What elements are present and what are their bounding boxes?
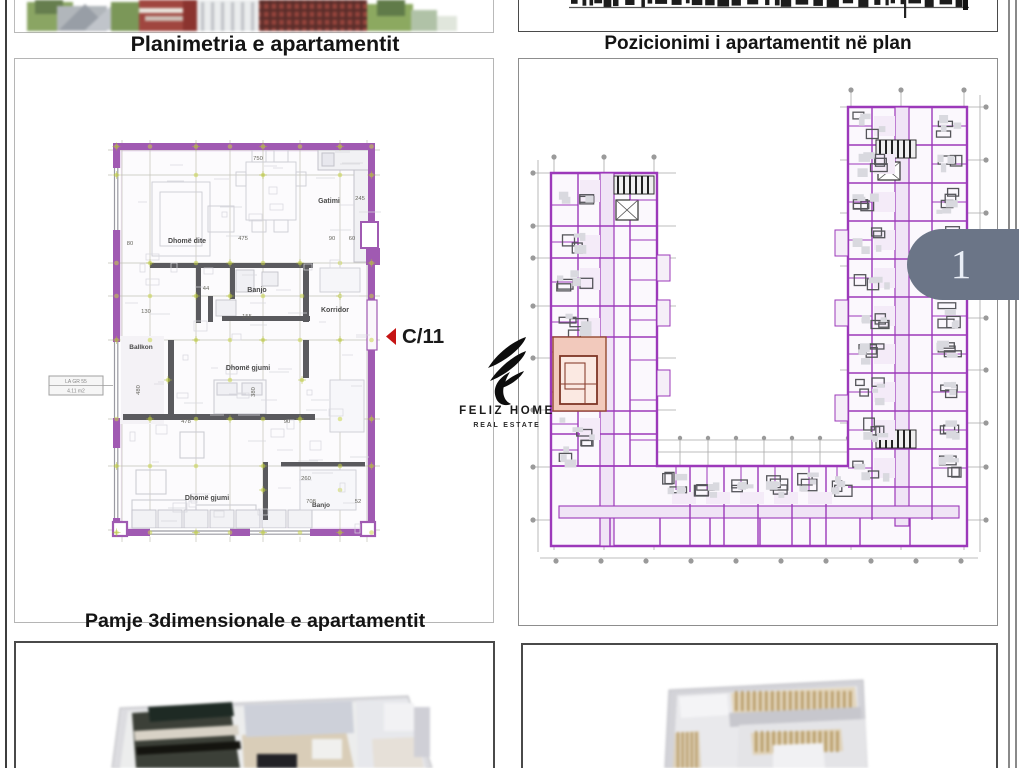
svg-text:478: 478 <box>181 419 191 425</box>
svg-text:245: 245 <box>355 196 365 202</box>
svg-text:90: 90 <box>329 236 335 242</box>
svg-text:LA GR 55: LA GR 55 <box>65 379 87 385</box>
svg-text:60: 60 <box>349 236 355 242</box>
svg-text:380: 380 <box>251 387 257 397</box>
svg-text:475: 475 <box>238 236 248 242</box>
svg-text:Dhomë gjumi: Dhomë gjumi <box>185 495 229 502</box>
svg-text:52: 52 <box>355 499 361 505</box>
svg-text:REAL ESTATE: REAL ESTATE <box>473 422 540 429</box>
svg-text:708: 708 <box>306 499 316 505</box>
svg-text:Ballkon: Ballkon <box>129 344 153 351</box>
svg-text:Banjo: Banjo <box>247 287 266 294</box>
svg-text:90: 90 <box>284 419 290 425</box>
svg-text:Dhomë dite: Dhomë dite <box>168 238 206 245</box>
svg-text:260: 260 <box>301 476 311 482</box>
svg-text:130: 130 <box>141 309 151 315</box>
svg-text:480: 480 <box>136 385 142 395</box>
svg-text:Dhomë gjumi: Dhomë gjumi <box>226 365 270 372</box>
svg-text:Korridor: Korridor <box>321 307 349 314</box>
svg-text:FELIZ HOME: FELIZ HOME <box>459 405 555 417</box>
svg-text:750: 750 <box>253 156 263 162</box>
svg-text:80: 80 <box>127 241 133 247</box>
svg-text:Gatimi: Gatimi <box>318 198 340 205</box>
svg-text:155: 155 <box>242 314 252 320</box>
svg-text:44: 44 <box>203 286 210 292</box>
svg-text:4.11 m2: 4.11 m2 <box>67 389 85 395</box>
